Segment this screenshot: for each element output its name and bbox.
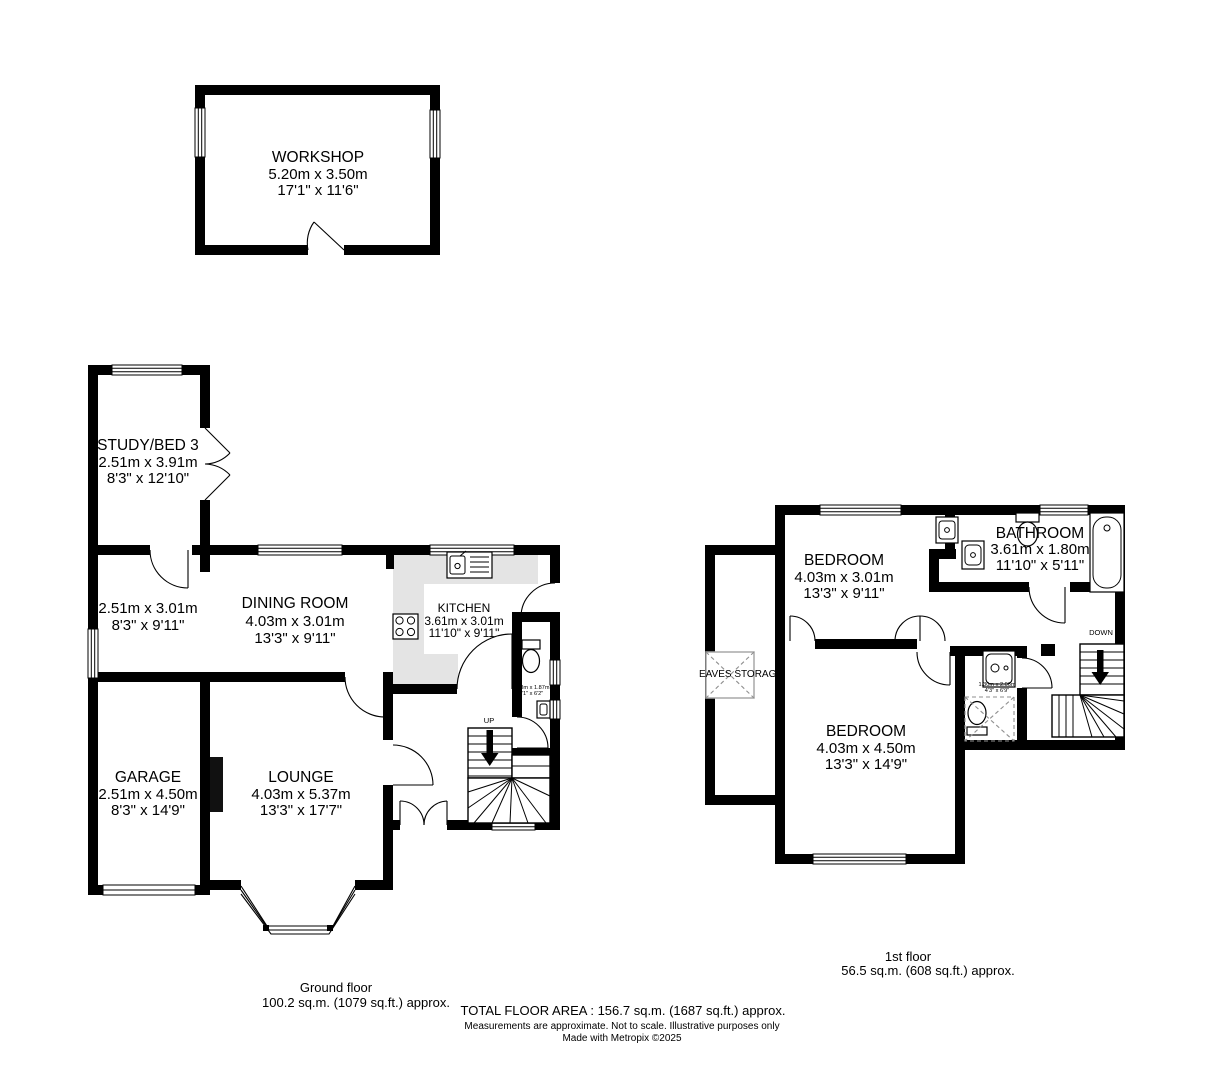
ground-stairs — [468, 728, 550, 823]
study-dim-imperial: 8'3" x 12'10" — [107, 470, 189, 487]
bathroom-dim-metric: 3.61m x 1.80m — [990, 541, 1089, 558]
front-door — [400, 801, 447, 825]
dining-window — [258, 545, 342, 555]
workshop-window-left — [195, 108, 205, 157]
workshop-plan: WORKSHOP 5.20m x 3.50m 17'1" x 11'6" — [195, 85, 440, 255]
bathtub-icon — [1090, 513, 1124, 592]
bedroom1-window — [820, 505, 901, 515]
eaves-storage-label: EAVES STORAGE — [699, 669, 783, 680]
first-doors — [790, 587, 1065, 688]
total-floor-area: TOTAL FLOOR AREA : 156.7 sq.m. (1687 sq.… — [461, 1003, 786, 1018]
study-dim-metric: 2.51m x 3.91m — [98, 454, 197, 471]
wc-dim-imperial: 3'1" x 6'2" — [519, 691, 543, 697]
hob-icon — [393, 614, 418, 639]
ground-floor-title: Ground floor — [300, 980, 373, 995]
first-stairs — [1052, 644, 1124, 737]
dining-label: DINING ROOM — [242, 595, 349, 612]
up-label: UP — [484, 716, 494, 725]
wc-sink-icon — [537, 701, 550, 718]
bedroom1-label: BEDROOM — [804, 552, 884, 569]
bedroom2-door — [917, 652, 950, 685]
study-inner-door — [150, 550, 188, 588]
bedroom2-dim-metric: 4.03m x 4.50m — [816, 740, 915, 757]
disclaimer: Measurements are approximate. Not to sca… — [464, 1021, 779, 1032]
bedroom1-dim-imperial: 13'3" x 9'11" — [803, 585, 884, 602]
study-window — [112, 365, 182, 375]
kitchen-sink-icon — [447, 551, 492, 578]
first-floor-plan: EN-SUITE — [699, 505, 1125, 864]
wc-window — [550, 660, 560, 685]
dining-dim-metric: 4.03m x 3.01m — [245, 613, 344, 630]
bedroom2-window — [813, 854, 906, 864]
landing-double-doors — [895, 616, 945, 641]
bathroom-label: BATHROOM — [996, 525, 1084, 542]
bedroom2-dim-imperial: 13'3" x 14'9" — [825, 756, 907, 773]
study-label: STUDY/BED 3 — [97, 437, 199, 454]
garage-label: GARAGE — [115, 769, 181, 786]
bedroom1-sink-icon — [936, 517, 958, 543]
floorplan-canvas: WORKSHOP 5.20m x 3.50m 17'1" x 11'6" — [0, 0, 1214, 1080]
back-door — [521, 583, 555, 617]
workshop-dim-imperial: 17'1" x 11'6" — [277, 182, 358, 199]
kitchen-dim-imperial: 11'10" x 9'11" — [429, 626, 500, 640]
wc-door — [517, 717, 548, 748]
bedroom2-label: BEDROOM — [826, 723, 906, 740]
garage-door-opening — [103, 885, 195, 895]
hall-side-window — [550, 700, 560, 719]
workshop-label: WORKSHOP — [272, 149, 364, 166]
bedroom1-door — [790, 616, 815, 641]
kitchen-label: KITCHEN — [438, 601, 491, 615]
lounge-label: LOUNGE — [268, 769, 333, 786]
dining-dim-imperial: 13'3" x 9'11" — [254, 630, 335, 647]
lounge-hall-door — [393, 745, 433, 785]
lounge-dim-imperial: 13'3" x 17'7" — [260, 802, 342, 819]
bathroom-sink-icon — [962, 541, 984, 569]
workshop-door — [307, 222, 344, 250]
side-room-window — [88, 629, 98, 678]
down-label: DOWN — [1089, 628, 1113, 637]
bathroom-dim-imperial: 11'10" x 5'11" — [996, 557, 1084, 574]
kitchen-door — [457, 634, 512, 689]
first-floor-title: 1st floor — [885, 949, 932, 964]
ground-floor-area: 100.2 sq.m. (1079 sq.ft.) approx. — [262, 995, 450, 1010]
credit: Made with Metropix ©2025 — [562, 1033, 682, 1044]
bathroom-door — [1029, 587, 1065, 623]
study-french-doors — [205, 428, 230, 500]
side-room-dim-imperial: 8'3" x 9'11" — [112, 617, 185, 634]
lounge-bay-window — [241, 886, 355, 934]
workshop-dim-metric: 5.20m x 3.50m — [268, 166, 367, 183]
ground-floor-plan: STUDY/BED 3 2.51m x 3.91m 8'3" x 12'10" … — [88, 365, 560, 934]
bedroom1-dim-metric: 4.03m x 3.01m — [794, 569, 893, 586]
captions: Ground floor 100.2 sq.m. (1079 sq.ft.) a… — [262, 949, 1015, 1044]
floorplan-page: WORKSHOP 5.20m x 3.50m 17'1" x 11'6" — [0, 0, 1214, 1080]
side-room-dim-metric: 2.51m x 3.01m — [98, 600, 197, 617]
ensuite-dim-imperial: 4'3" x 6'9" — [985, 688, 1009, 694]
garage-dim-imperial: 8'3" x 14'9" — [111, 802, 185, 819]
wc-toilet-icon — [522, 640, 540, 673]
workshop-window-right — [430, 110, 440, 158]
garage-dim-metric: 2.51m x 4.50m — [98, 786, 197, 803]
lounge-top-door — [345, 677, 385, 717]
lounge-dim-metric: 4.03m x 5.37m — [251, 786, 350, 803]
ensuite-door — [1022, 658, 1052, 688]
first-floor-area: 56.5 sq.m. (608 sq.ft.) approx. — [841, 963, 1014, 978]
bathroom-window — [1040, 505, 1088, 515]
